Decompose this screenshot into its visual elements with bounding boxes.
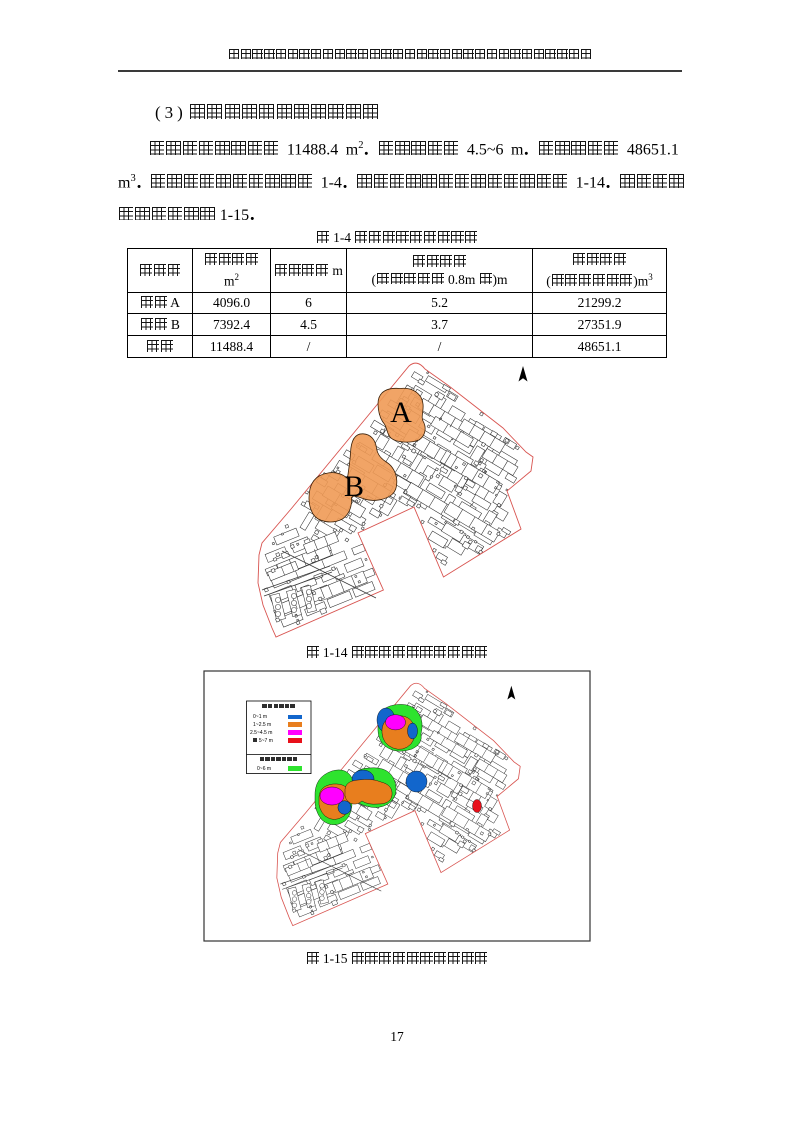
svg-text:A: A (390, 396, 412, 429)
svg-text:B: B (344, 470, 364, 503)
